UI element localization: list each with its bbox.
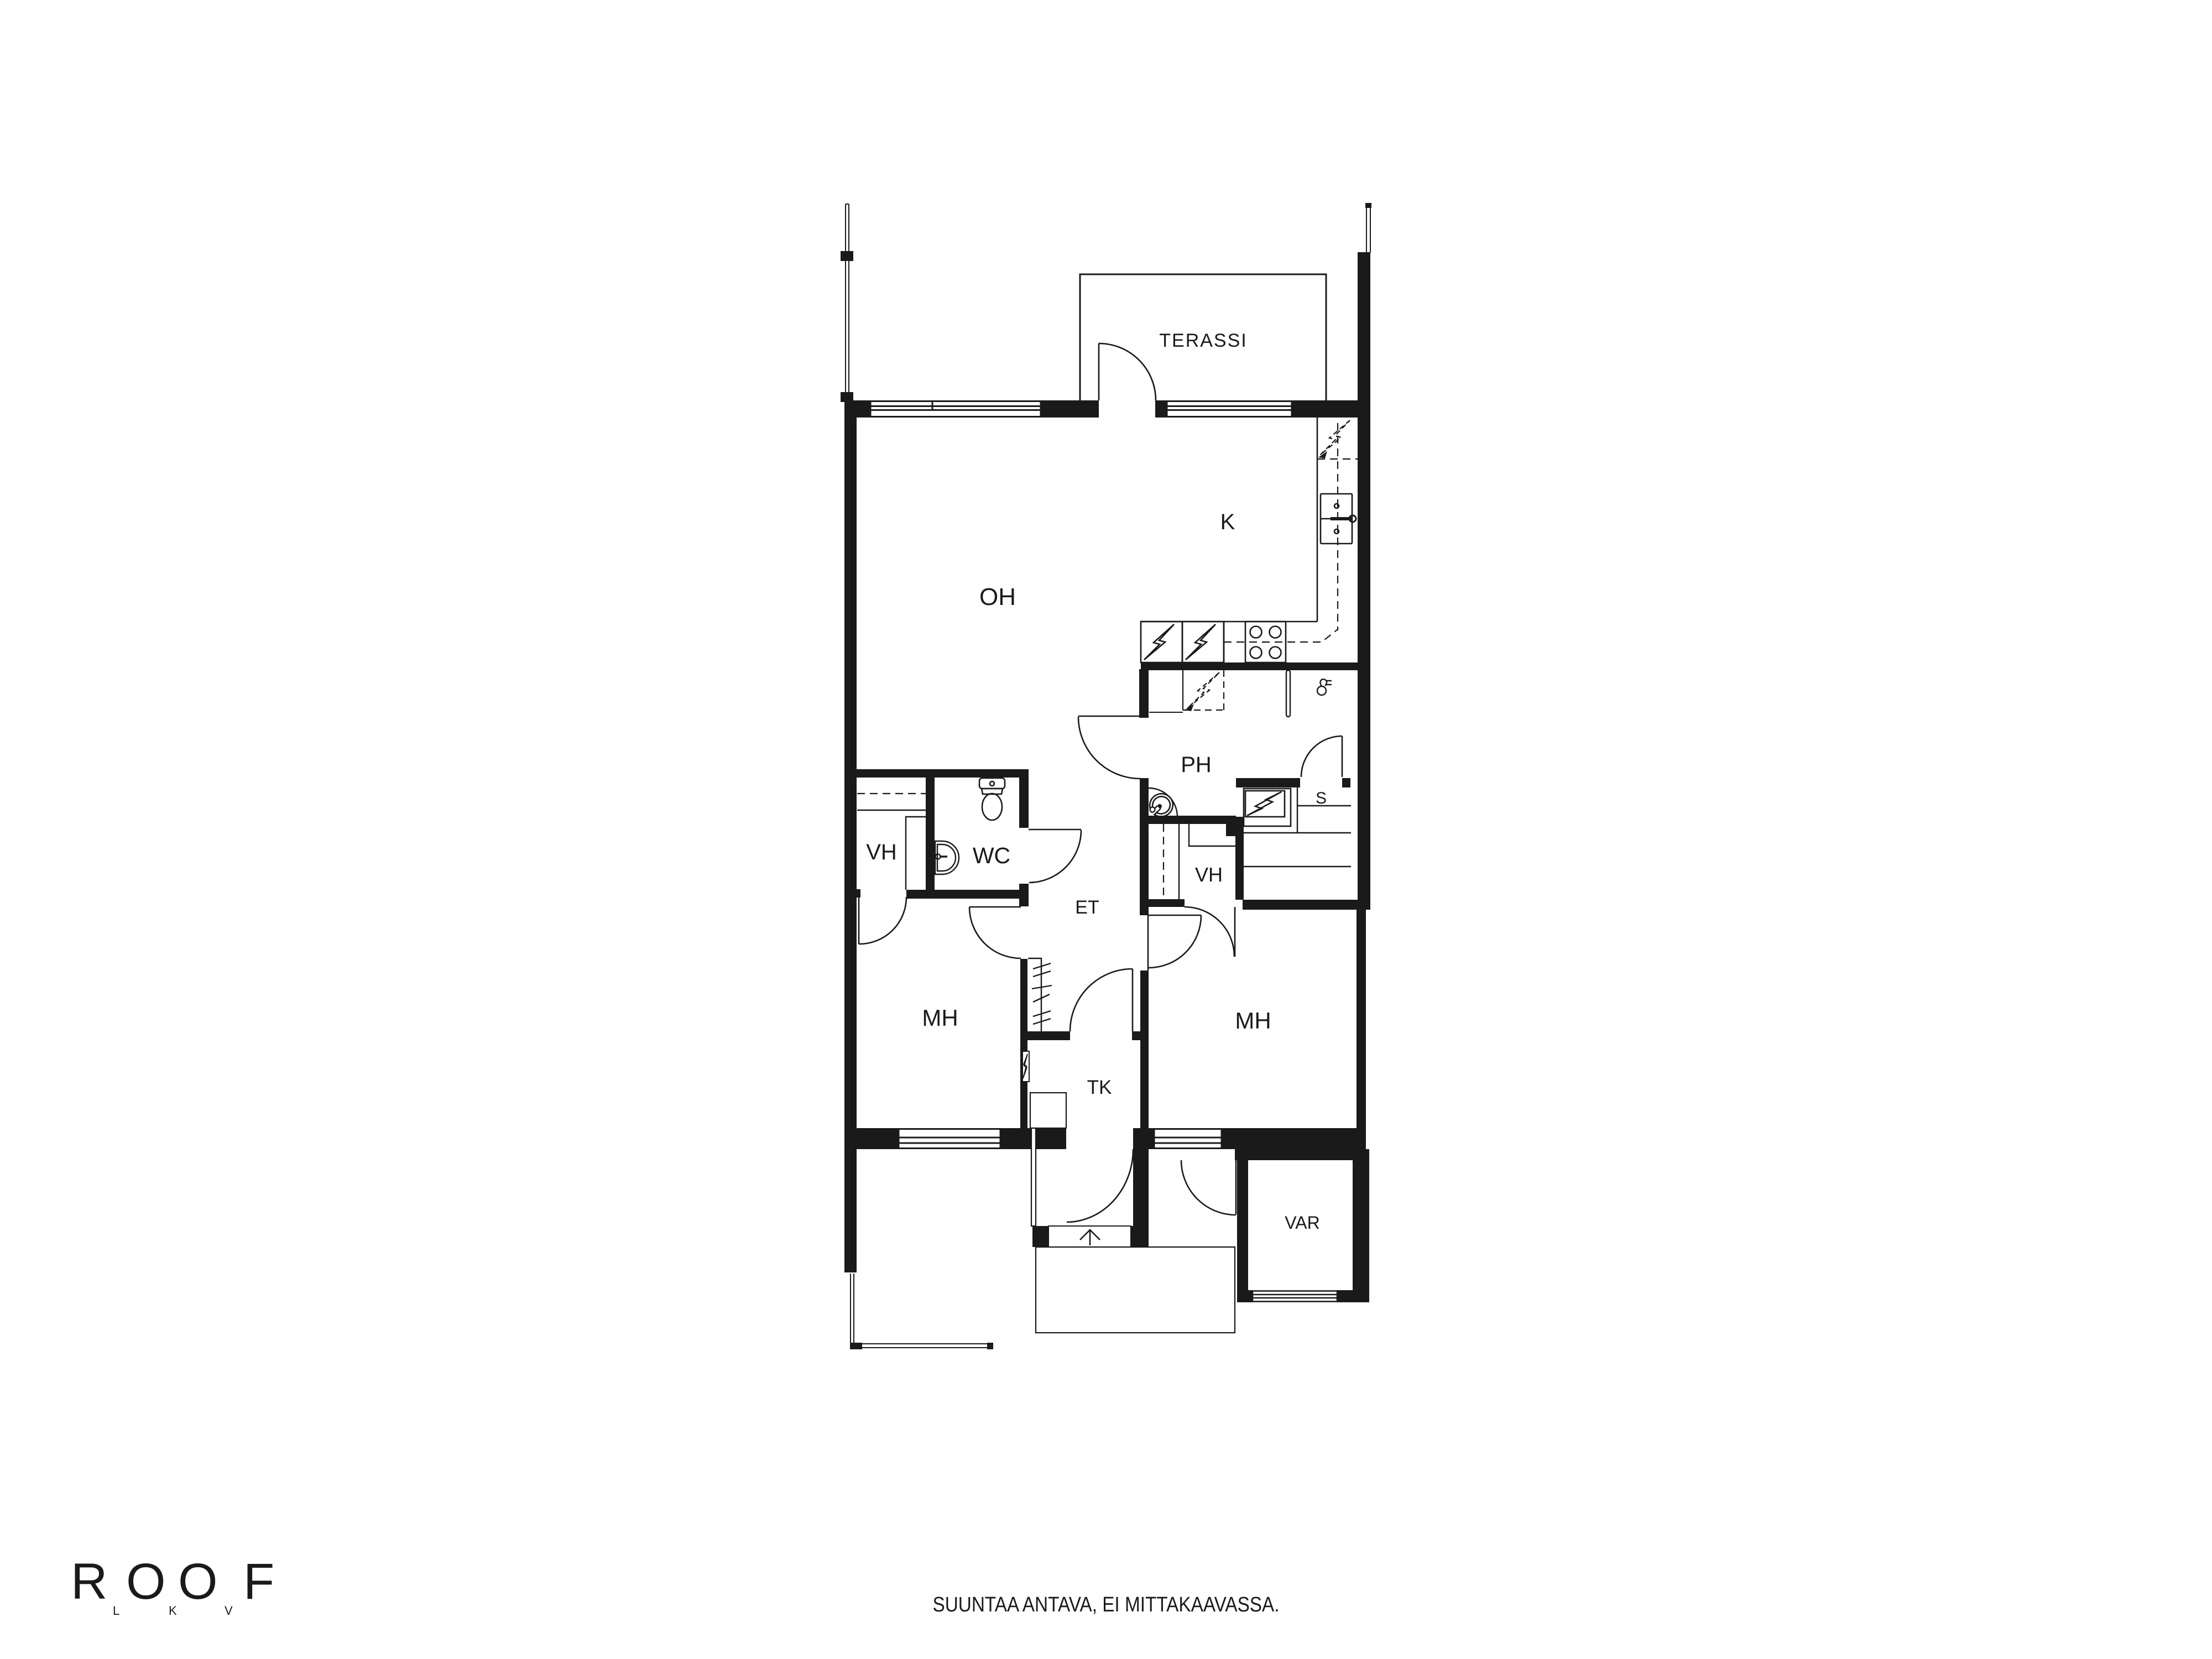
svg-text:F: F [243,1553,274,1610]
svg-text:O: O [126,1553,166,1610]
svg-text:TERASSI: TERASSI [1159,330,1247,351]
svg-text:V: V [225,1604,233,1618]
svg-text:PH: PH [1181,753,1212,777]
svg-text:MH: MH [1235,1008,1271,1034]
svg-text:L: L [113,1604,119,1618]
svg-text:VAR: VAR [1285,1213,1319,1233]
svg-text:SUUNTAA ANTAVA, EI MITTAKAAVAS: SUUNTAA ANTAVA, EI MITTAKAAVASSA. [933,1593,1280,1616]
svg-text:K: K [1220,510,1235,534]
svg-text:ET: ET [1075,897,1099,918]
svg-text:O: O [178,1553,218,1610]
svg-text:K: K [169,1604,177,1618]
svg-text:S: S [1316,789,1327,807]
svg-text:VH: VH [866,840,897,864]
svg-text:VH: VH [1195,863,1223,886]
svg-text:TK: TK [1087,1077,1112,1098]
svg-text:OH: OH [979,583,1016,611]
svg-text:MH: MH [922,1005,958,1031]
svg-text:WC: WC [973,843,1010,868]
svg-text:R: R [71,1553,107,1610]
